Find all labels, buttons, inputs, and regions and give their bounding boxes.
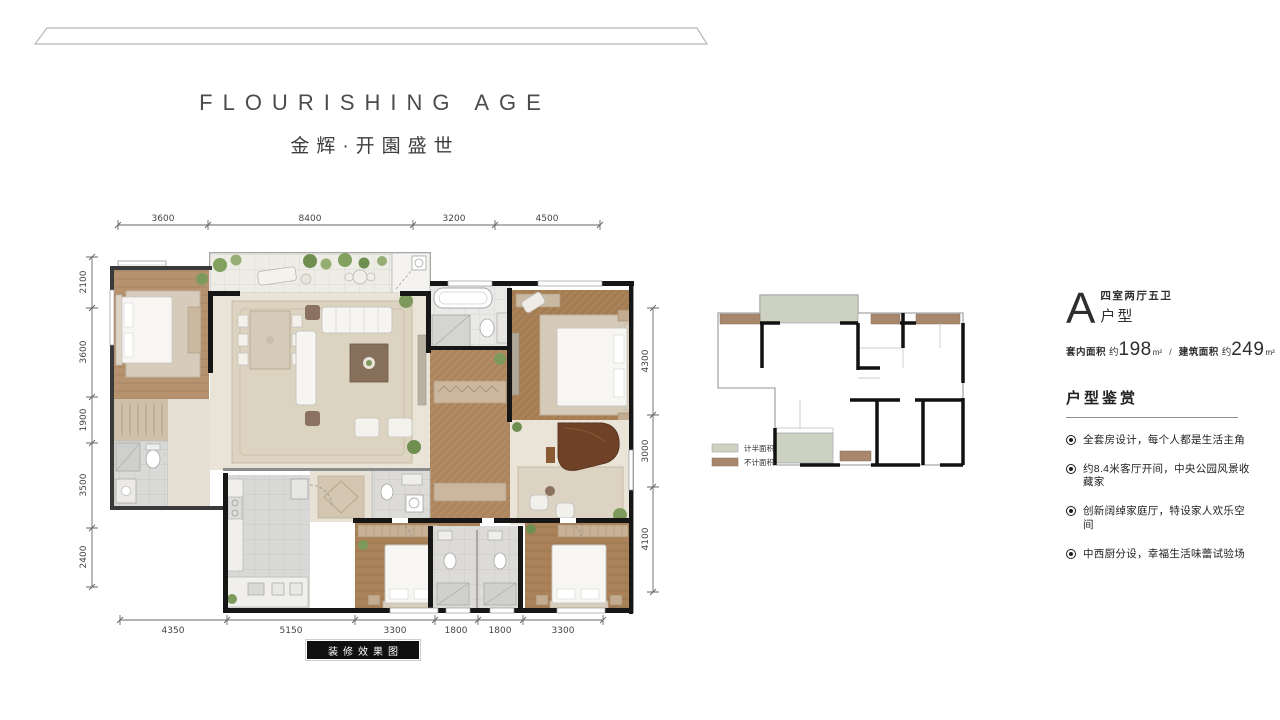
counter — [227, 479, 243, 571]
bed-headboard — [116, 295, 122, 365]
toilet-icon — [146, 450, 160, 468]
bathroom-center — [372, 470, 430, 522]
inner-area-prefix: 套内面积 — [1066, 344, 1106, 358]
features-section-title: 户型鉴赏 — [1066, 387, 1252, 408]
side-table — [305, 305, 320, 320]
balcony-table — [353, 270, 367, 284]
bathroom-left — [114, 441, 168, 507]
plant-icon — [358, 540, 368, 550]
plant-icon — [196, 273, 208, 285]
built-area-prefix: 建筑面积 — [1179, 344, 1219, 358]
svg-text:3300: 3300 — [384, 626, 407, 636]
project-title-en: FLOURISHING AGE — [160, 90, 590, 116]
svg-text:1900: 1900 — [79, 408, 89, 431]
plant-icon — [213, 258, 227, 272]
legend: 计半面积 不计面积 — [712, 443, 774, 467]
dresser — [188, 307, 201, 353]
vanity — [402, 474, 422, 485]
runner-rug — [434, 381, 506, 403]
svg-text:3000: 3000 — [641, 439, 651, 462]
svg-text:4300: 4300 — [641, 349, 651, 372]
svg-text:5150: 5150 — [280, 626, 303, 636]
svg-text:4350: 4350 — [162, 626, 185, 636]
plant-icon — [526, 524, 536, 534]
bullet-circle-icon — [1066, 506, 1076, 516]
bathrooms-bottom-pair — [433, 526, 521, 610]
feature-item: 创新阔绰家庭厅，特设家人欢乐空间 — [1066, 505, 1252, 531]
vanity — [497, 313, 508, 343]
project-title-cn: 金辉·开園盛世 — [160, 131, 590, 158]
svg-text:4500: 4500 — [536, 214, 559, 224]
washer-icon — [406, 495, 423, 512]
tv-console — [418, 335, 426, 405]
svg-text:1800: 1800 — [445, 626, 468, 636]
armchair — [530, 495, 548, 510]
washer-icon — [412, 256, 426, 270]
legend-swatch-no-area — [712, 458, 738, 466]
corridor-herringbone — [430, 350, 510, 522]
fridge — [291, 479, 308, 499]
bathroom-top — [430, 283, 510, 350]
bathtub — [434, 288, 492, 308]
svg-text:1800: 1800 — [489, 626, 512, 636]
svg-text:8400: 8400 — [299, 214, 322, 224]
kitchen — [225, 475, 310, 610]
unit-info-panel: A 四室两厅五卫 户型 套内面积 约 198 m² / 建筑面积 约 249 m… — [1066, 288, 1252, 561]
mini-baywindow-3 — [916, 314, 960, 324]
feature-item: 约8.4米客厅开间，中央公园风景收藏家 — [1066, 463, 1252, 489]
nightstand — [368, 595, 380, 605]
bullet-circle-icon — [1066, 435, 1076, 445]
mini-floor-plan: 计半面积 不计面积 — [700, 278, 990, 488]
unit-type-row: A 四室两厅五卫 户型 — [1066, 288, 1252, 327]
plant-icon — [399, 294, 413, 308]
mini-baywindow-2 — [871, 314, 900, 324]
mini-service-half-area — [775, 433, 833, 463]
hallway-bottom — [310, 470, 372, 522]
feature-item: 中西厨分设，幸福生活味蕾试验场 — [1066, 548, 1252, 561]
main-floor-plan: 3600 8400 3200 4500 2100 3600 1900 3500 … — [60, 195, 680, 695]
built-area-value: 249 — [1231, 339, 1264, 361]
mini-baywindow-4 — [840, 451, 871, 461]
sofa-side — [296, 331, 316, 405]
top-decorative-band — [30, 24, 714, 50]
section-divider — [1066, 417, 1238, 418]
svg-text:3600: 3600 — [79, 340, 89, 363]
family-hall — [510, 420, 633, 525]
living-dining-room — [210, 293, 430, 470]
wardrobe — [558, 525, 628, 537]
plant-icon — [494, 353, 506, 365]
pendant-lamp — [266, 336, 274, 344]
svg-text:3500: 3500 — [79, 473, 89, 496]
legend-label-half-area: 计半面积 — [744, 443, 774, 453]
bedroom-bottom-right — [525, 522, 630, 610]
piano-bench — [546, 447, 555, 463]
plan-caption-badge: 装修效果图 — [307, 641, 419, 659]
master-bedroom — [510, 290, 633, 424]
bedroom-top-left — [114, 261, 209, 399]
sofa-main — [322, 307, 392, 333]
bullet-circle-icon — [1066, 464, 1076, 474]
balcony-top — [210, 253, 392, 293]
unit-area-line: 套内面积 约 198 m² / 建筑面积 约 249 m² — [1066, 339, 1252, 361]
toilet-icon — [444, 553, 456, 569]
utility-balcony — [392, 253, 430, 293]
floorplan-poster: { "header": { "title_en": "FLOURISHING A… — [0, 0, 1280, 720]
mini-baywindow-1 — [720, 314, 760, 324]
svg-text:2400: 2400 — [79, 545, 89, 568]
plant-icon — [227, 594, 237, 604]
nightstand — [536, 595, 548, 605]
toilet-icon — [480, 319, 494, 337]
svg-text:4100: 4100 — [641, 527, 651, 550]
inner-area-value: 198 — [1119, 339, 1152, 361]
unit-type-letter: A — [1066, 291, 1095, 327]
toilet-icon — [381, 484, 393, 500]
legend-swatch-half-area — [712, 444, 738, 452]
svg-text:3200: 3200 — [443, 214, 466, 224]
feature-item: 全套房设计，每个人都是生活主角 — [1066, 434, 1252, 447]
unit-rooms-desc: 四室两厅五卫 — [1100, 288, 1172, 303]
mini-balcony-half-area — [760, 295, 858, 323]
tv-cabinet — [512, 333, 519, 395]
sink — [248, 583, 264, 595]
svg-text:3600: 3600 — [152, 214, 175, 224]
bullet-circle-icon — [1066, 549, 1076, 559]
legend-label-no-area: 不计面积 — [744, 457, 774, 467]
unit-type-label: 户型 — [1100, 305, 1172, 326]
toilet-icon — [494, 553, 506, 569]
corridor-left — [168, 399, 210, 508]
armchair — [355, 418, 379, 437]
svg-text:3300: 3300 — [552, 626, 575, 636]
svg-text:2100: 2100 — [79, 270, 89, 293]
hall-rug — [318, 476, 364, 518]
